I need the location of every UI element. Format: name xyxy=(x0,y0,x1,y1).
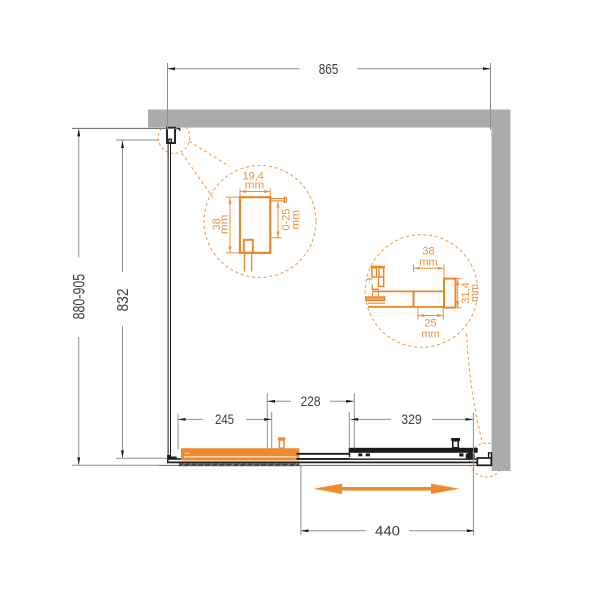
svg-text:mm: mm xyxy=(290,210,302,230)
svg-text:245: 245 xyxy=(215,411,234,427)
svg-text:mm: mm xyxy=(469,284,481,302)
svg-text:228: 228 xyxy=(301,393,321,409)
svg-text:865: 865 xyxy=(319,61,339,78)
svg-text:mm: mm xyxy=(419,256,437,268)
svg-text:880-905: 880-905 xyxy=(70,274,88,320)
svg-text:mm: mm xyxy=(245,179,265,191)
svg-text:mm: mm xyxy=(219,215,231,235)
svg-text:832: 832 xyxy=(115,289,132,312)
svg-text:mm: mm xyxy=(421,328,439,340)
svg-text:440: 440 xyxy=(375,523,400,539)
svg-text:329: 329 xyxy=(401,411,422,427)
